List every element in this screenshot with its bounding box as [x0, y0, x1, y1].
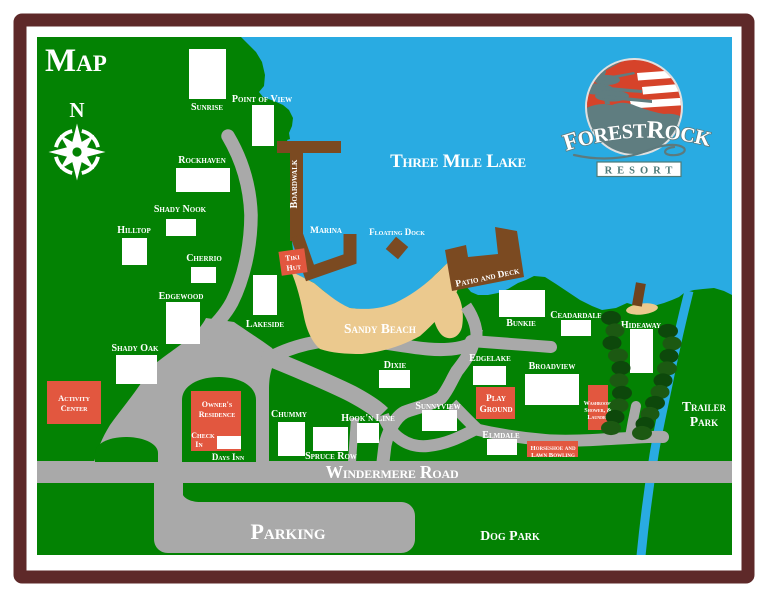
svg-text:Edgelake: Edgelake: [469, 353, 511, 364]
svg-text:Map: Map: [45, 43, 107, 79]
svg-text:Park: Park: [690, 414, 718, 429]
svg-text:Sunrise: Sunrise: [191, 102, 223, 113]
svg-text:Dog Park: Dog Park: [480, 528, 540, 543]
svg-text:Broadview: Broadview: [529, 361, 576, 372]
svg-text:Trailer: Trailer: [682, 399, 727, 414]
svg-text:Parking: Parking: [250, 519, 325, 544]
svg-text:Ground: Ground: [479, 405, 512, 415]
svg-text:Days Inn: Days Inn: [212, 452, 245, 462]
svg-text:Dixie: Dixie: [384, 360, 407, 371]
svg-text:Chummy: Chummy: [271, 409, 307, 420]
svg-text:Hilltop: Hilltop: [117, 225, 151, 236]
svg-text:Lakeside: Lakeside: [246, 319, 285, 330]
svg-text:Check: Check: [191, 431, 215, 440]
svg-text:Point of View: Point of View: [232, 94, 292, 105]
svg-text:Spruce Row: Spruce Row: [305, 451, 357, 462]
svg-text:Boardwalk: Boardwalk: [289, 159, 300, 208]
svg-text:Activity: Activity: [58, 393, 90, 403]
svg-text:N: N: [69, 98, 84, 122]
svg-text:Lawn Bowling: Lawn Bowling: [531, 452, 575, 459]
svg-text:Cherrio: Cherrio: [186, 253, 222, 264]
svg-text:Windermere Road: Windermere Road: [326, 462, 459, 482]
svg-text:Owner's: Owner's: [202, 400, 233, 409]
svg-text:Center: Center: [61, 403, 88, 413]
svg-text:Floating Dock: Floating Dock: [369, 227, 425, 237]
svg-text:Shady Nook: Shady Nook: [154, 204, 207, 215]
svg-text:Sandy Beach: Sandy Beach: [344, 321, 416, 336]
svg-text:Hook'n Line: Hook'n Line: [341, 413, 395, 424]
svg-text:Residence: Residence: [199, 410, 235, 419]
svg-text:Three Mile Lake: Three Mile Lake: [390, 151, 526, 172]
svg-text:Rockhaven: Rockhaven: [178, 155, 226, 166]
svg-text:Shady Oak: Shady Oak: [112, 343, 160, 354]
svg-text:Washroom,: Washroom,: [584, 400, 613, 407]
svg-text:RESORT: RESORT: [605, 166, 678, 177]
svg-text:In: In: [195, 440, 203, 449]
svg-text:Edgewood: Edgewood: [159, 291, 204, 302]
svg-text:Bunkie: Bunkie: [506, 318, 536, 329]
svg-text:Ceadardale: Ceadardale: [550, 310, 602, 321]
svg-text:Horseshoe and: Horseshoe and: [530, 445, 576, 452]
svg-text:Play: Play: [486, 394, 506, 404]
svg-text:Marina: Marina: [310, 226, 342, 236]
